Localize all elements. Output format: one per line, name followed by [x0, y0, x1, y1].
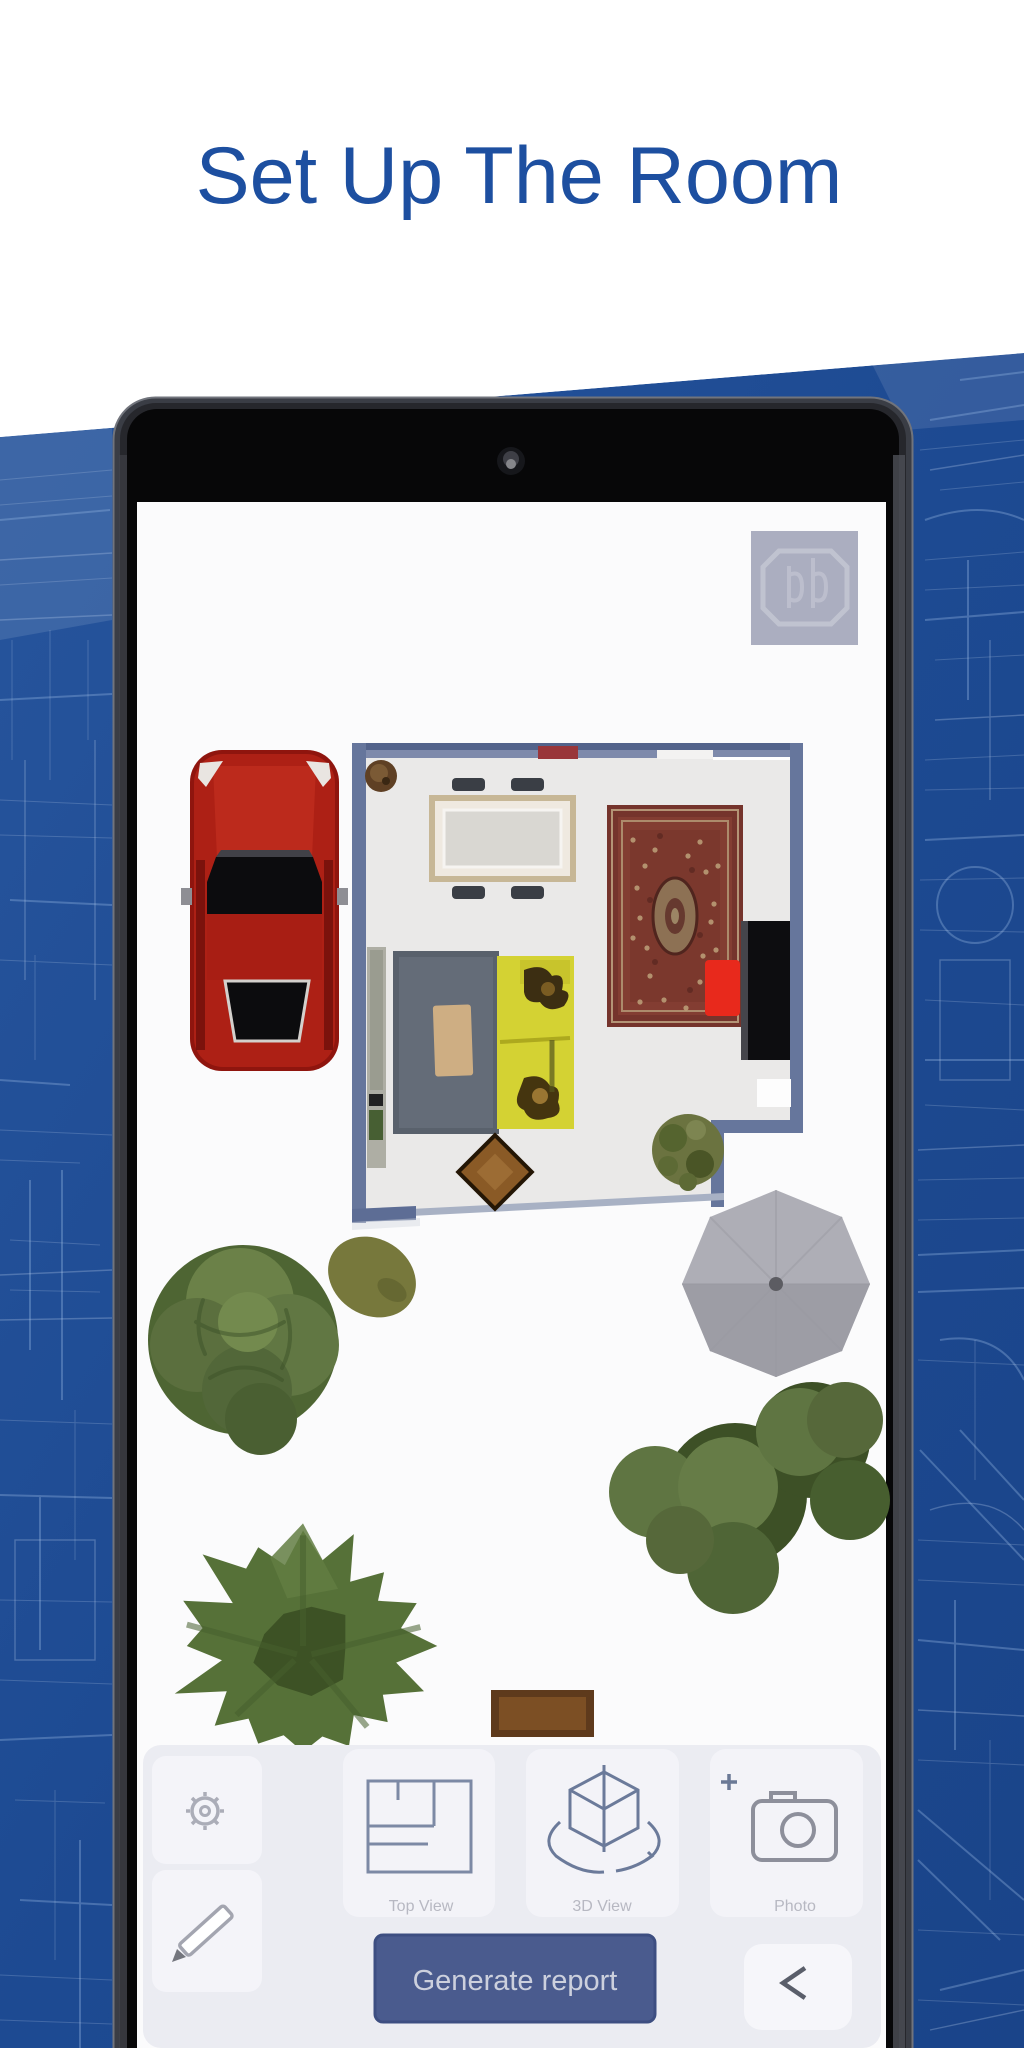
svg-text:3D View: 3D View [572, 1898, 632, 1915]
svg-text:Photo: Photo [774, 1898, 816, 1915]
svg-text:Set Up The Room: Set Up The Room [196, 131, 843, 221]
svg-text:Top View: Top View [389, 1898, 454, 1915]
svg-text:Generate report: Generate report [413, 1965, 618, 1997]
